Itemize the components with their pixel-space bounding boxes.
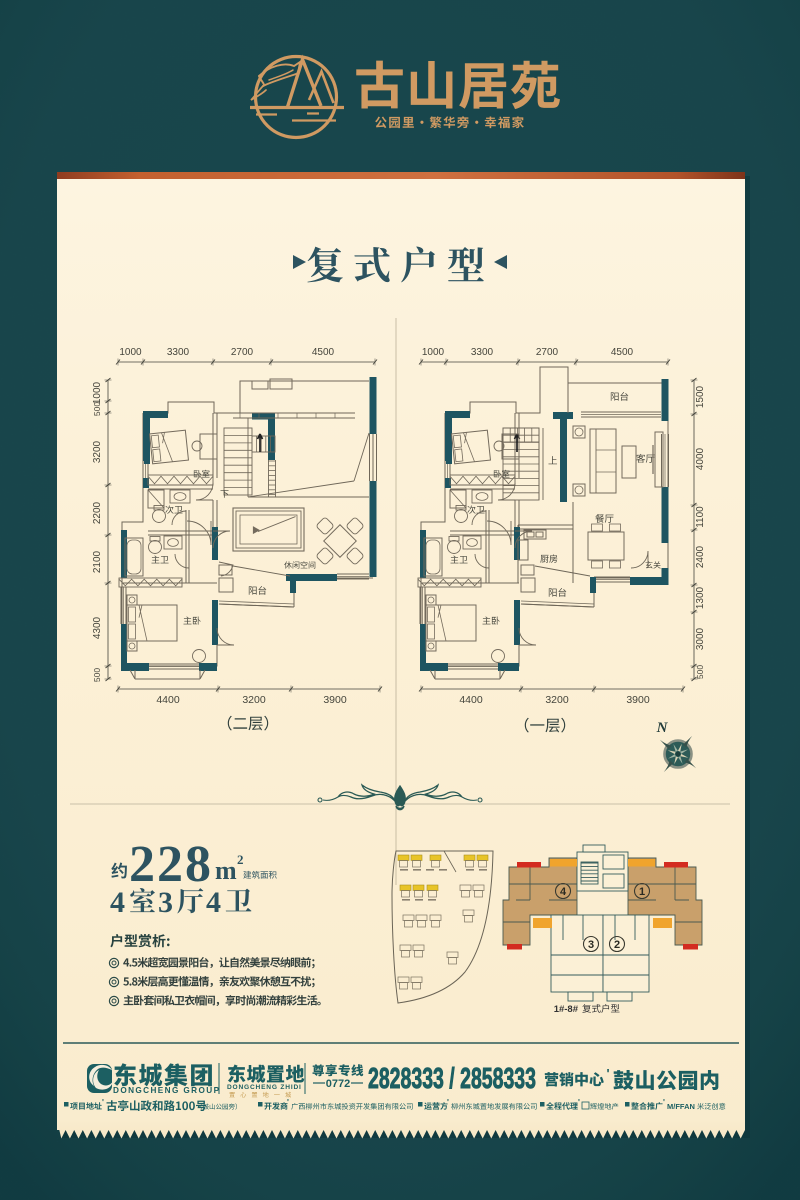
svg-text:3000: 3000 [695,627,706,650]
svg-text:3900: 3900 [626,694,650,706]
svg-text:2400: 2400 [695,545,706,568]
svg-text:4500: 4500 [611,347,634,358]
svg-text:1000: 1000 [92,381,103,404]
svg-text:2200: 2200 [92,501,103,524]
svg-text:': ' [663,1098,665,1107]
svg-text:0772: 0772 [326,1078,350,1090]
svg-text:': ' [102,1098,104,1107]
svg-text:2: 2 [614,939,620,951]
svg-text:4000: 4000 [695,447,706,470]
svg-text:3: 3 [588,939,594,951]
svg-text:2828333 / 2858333: 2828333 / 2858333 [368,1063,536,1095]
svg-text:4500: 4500 [312,347,335,358]
svg-text:4: 4 [560,886,567,898]
svg-text:1000: 1000 [119,347,142,358]
svg-text:3300: 3300 [167,347,190,358]
svg-text:228: 228 [129,836,213,893]
svg-text:3200: 3200 [92,440,103,463]
svg-text:4400: 4400 [156,694,180,706]
svg-text:1100: 1100 [695,506,706,528]
svg-text:1000: 1000 [422,347,445,358]
svg-text:3300: 3300 [471,347,494,358]
svg-text:3200: 3200 [545,694,569,706]
svg-text:2: 2 [237,852,244,867]
svg-text:': ' [578,1098,580,1107]
svg-text:500: 500 [92,668,102,682]
svg-text:1#-8#: 1#-8# [554,1004,579,1015]
svg-text:1300: 1300 [695,586,706,609]
svg-text:3: 3 [158,886,173,919]
svg-text:500: 500 [92,402,102,416]
svg-text:': ' [287,1098,289,1107]
svg-text:500: 500 [695,665,705,679]
svg-text:N: N [656,720,669,736]
svg-text:2700: 2700 [231,347,254,358]
svg-text:4300: 4300 [92,616,103,639]
svg-text:1500: 1500 [695,385,706,408]
svg-text:3200: 3200 [242,694,266,706]
svg-text:DONGCHENG ZHIDI: DONGCHENG ZHIDI [227,1084,302,1091]
svg-text:2100: 2100 [92,550,103,573]
svg-text:1: 1 [639,886,645,898]
svg-text:2700: 2700 [536,347,559,358]
svg-text:': ' [606,1066,609,1081]
svg-text:M/FFAN: M/FFAN [667,1102,695,1111]
svg-text:DONGCHENG GROUP: DONGCHENG GROUP [113,1086,220,1095]
svg-text:4400: 4400 [459,694,483,706]
svg-text:4: 4 [110,886,125,919]
svg-text:4: 4 [206,886,221,919]
svg-text:m: m [215,856,237,885]
svg-text:': ' [447,1098,449,1107]
svg-text:3900: 3900 [323,694,347,706]
